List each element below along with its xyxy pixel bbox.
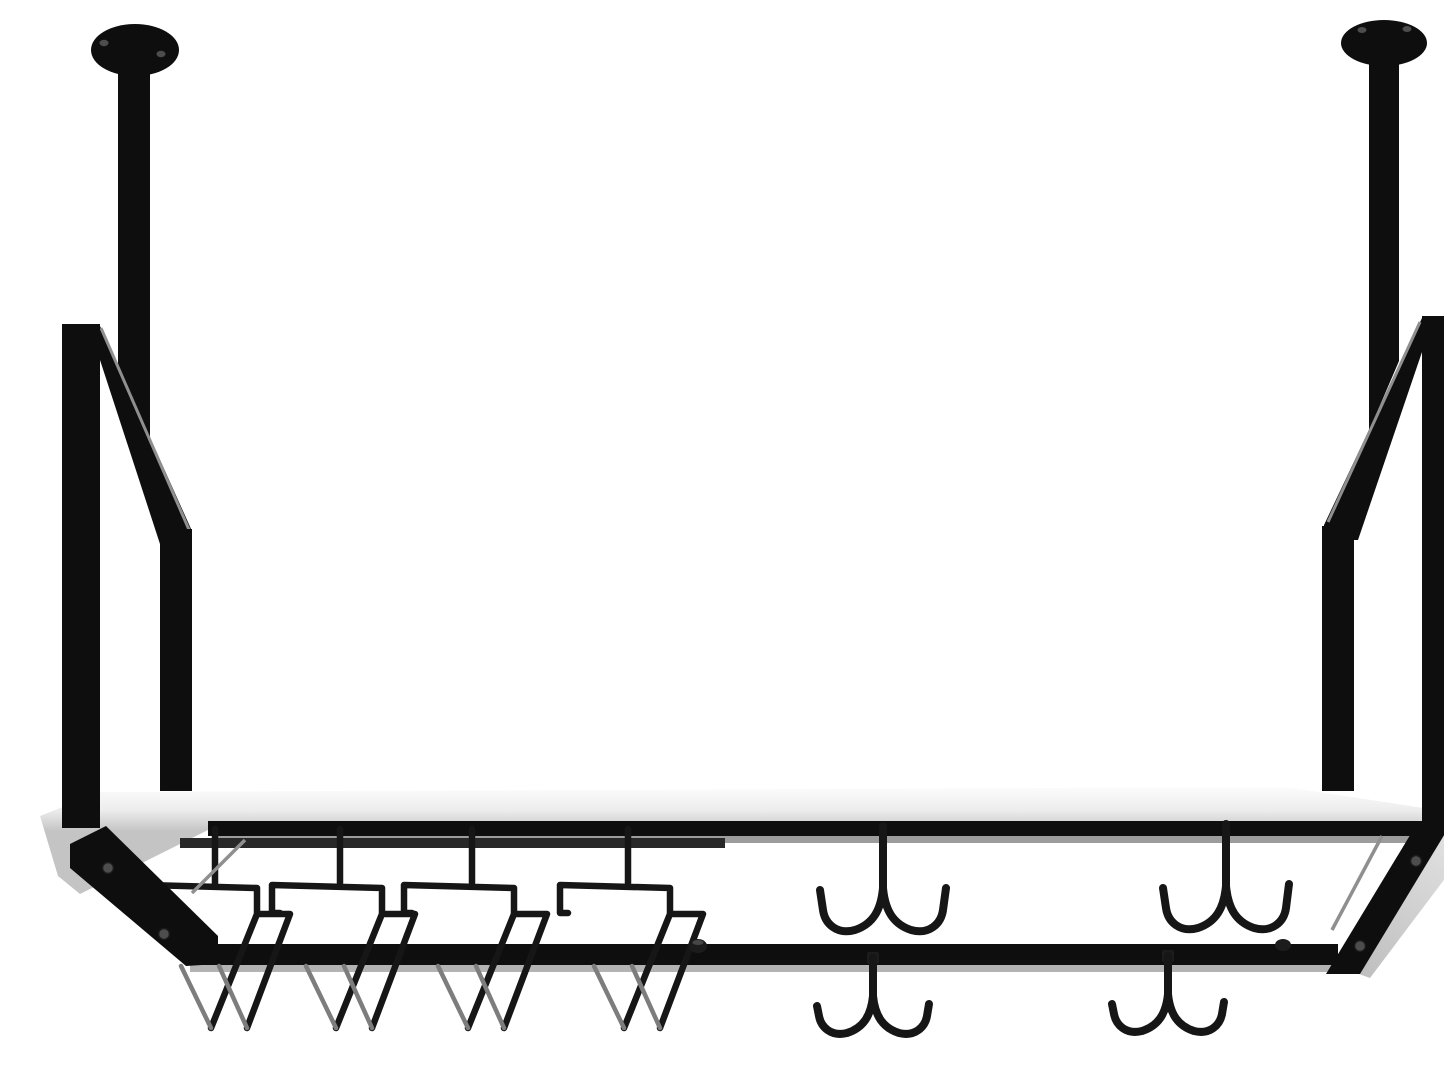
right-front-upright xyxy=(1422,316,1444,828)
right-flange-hole-1 xyxy=(1358,27,1367,33)
left-ceiling-flange xyxy=(91,24,179,76)
left-front-upright xyxy=(62,324,100,828)
right-ceiling-pole xyxy=(1369,38,1399,431)
right-flange-hole-2 xyxy=(1403,26,1412,32)
left-flange-hole-2 xyxy=(157,51,166,57)
right-rear-post xyxy=(1322,526,1354,791)
left-flange-hole-1 xyxy=(100,40,109,46)
right-ceiling-flange xyxy=(1341,20,1427,66)
front-rail-screw-right xyxy=(1275,939,1291,951)
right-cap-screw-bottom xyxy=(1355,941,1366,952)
left-cap-screw-bottom xyxy=(159,929,170,940)
left-rear-post xyxy=(160,529,192,791)
left-cap-screw-top xyxy=(103,863,114,874)
pot-rack-illustration xyxy=(40,16,1444,1049)
product-photo xyxy=(40,16,1444,1049)
stemware-rail-4 xyxy=(560,829,703,1028)
front-rail-screw-center xyxy=(689,939,707,953)
stemware-rail-2 xyxy=(272,829,415,1028)
right-cap-screw-top xyxy=(1411,856,1422,867)
frame-back-rail xyxy=(180,821,1424,848)
stemware-rail-3 xyxy=(404,829,547,1028)
